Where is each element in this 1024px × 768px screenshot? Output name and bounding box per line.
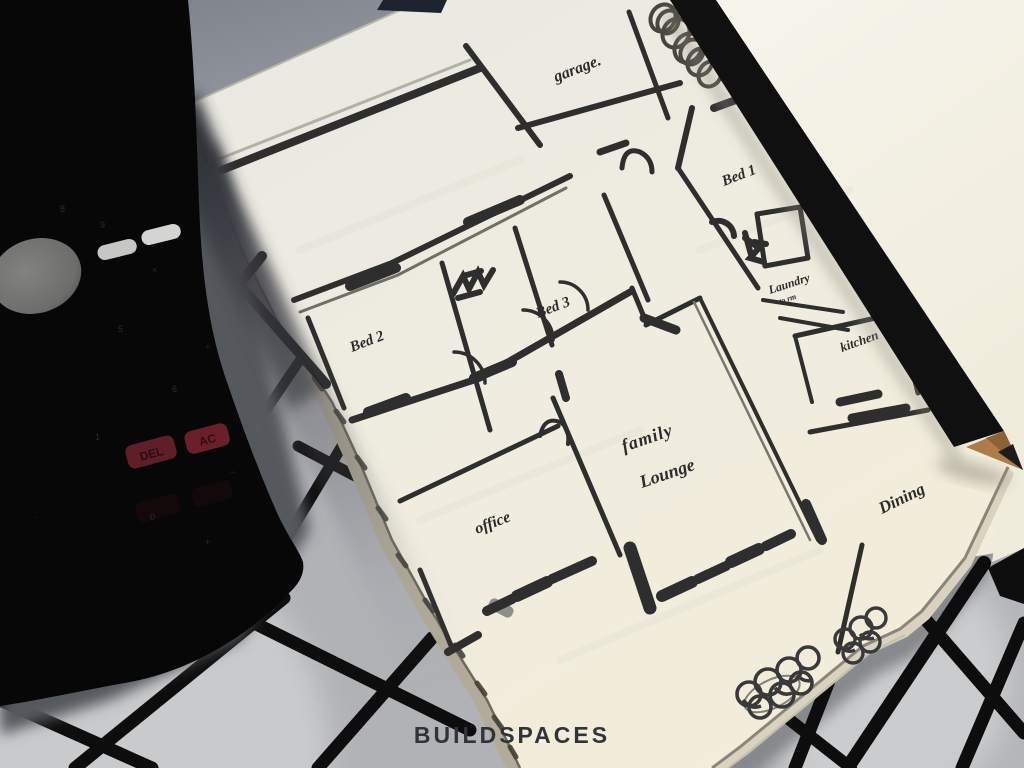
svg-text:×: × xyxy=(152,265,157,275)
svg-text:BUILDSPACES: BUILDSPACES xyxy=(414,722,610,748)
svg-text:9: 9 xyxy=(100,220,105,230)
svg-text:−: − xyxy=(230,467,235,477)
svg-text:6: 6 xyxy=(172,384,177,394)
svg-text:+: + xyxy=(205,537,210,547)
svg-text:1: 1 xyxy=(95,432,100,442)
svg-text:8: 8 xyxy=(60,204,65,214)
svg-text:÷: ÷ xyxy=(205,342,210,352)
svg-text:5: 5 xyxy=(118,324,123,334)
svg-text:·: · xyxy=(35,512,38,522)
svg-text:0: 0 xyxy=(150,512,155,522)
svg-text:9: 9 xyxy=(255,422,260,432)
